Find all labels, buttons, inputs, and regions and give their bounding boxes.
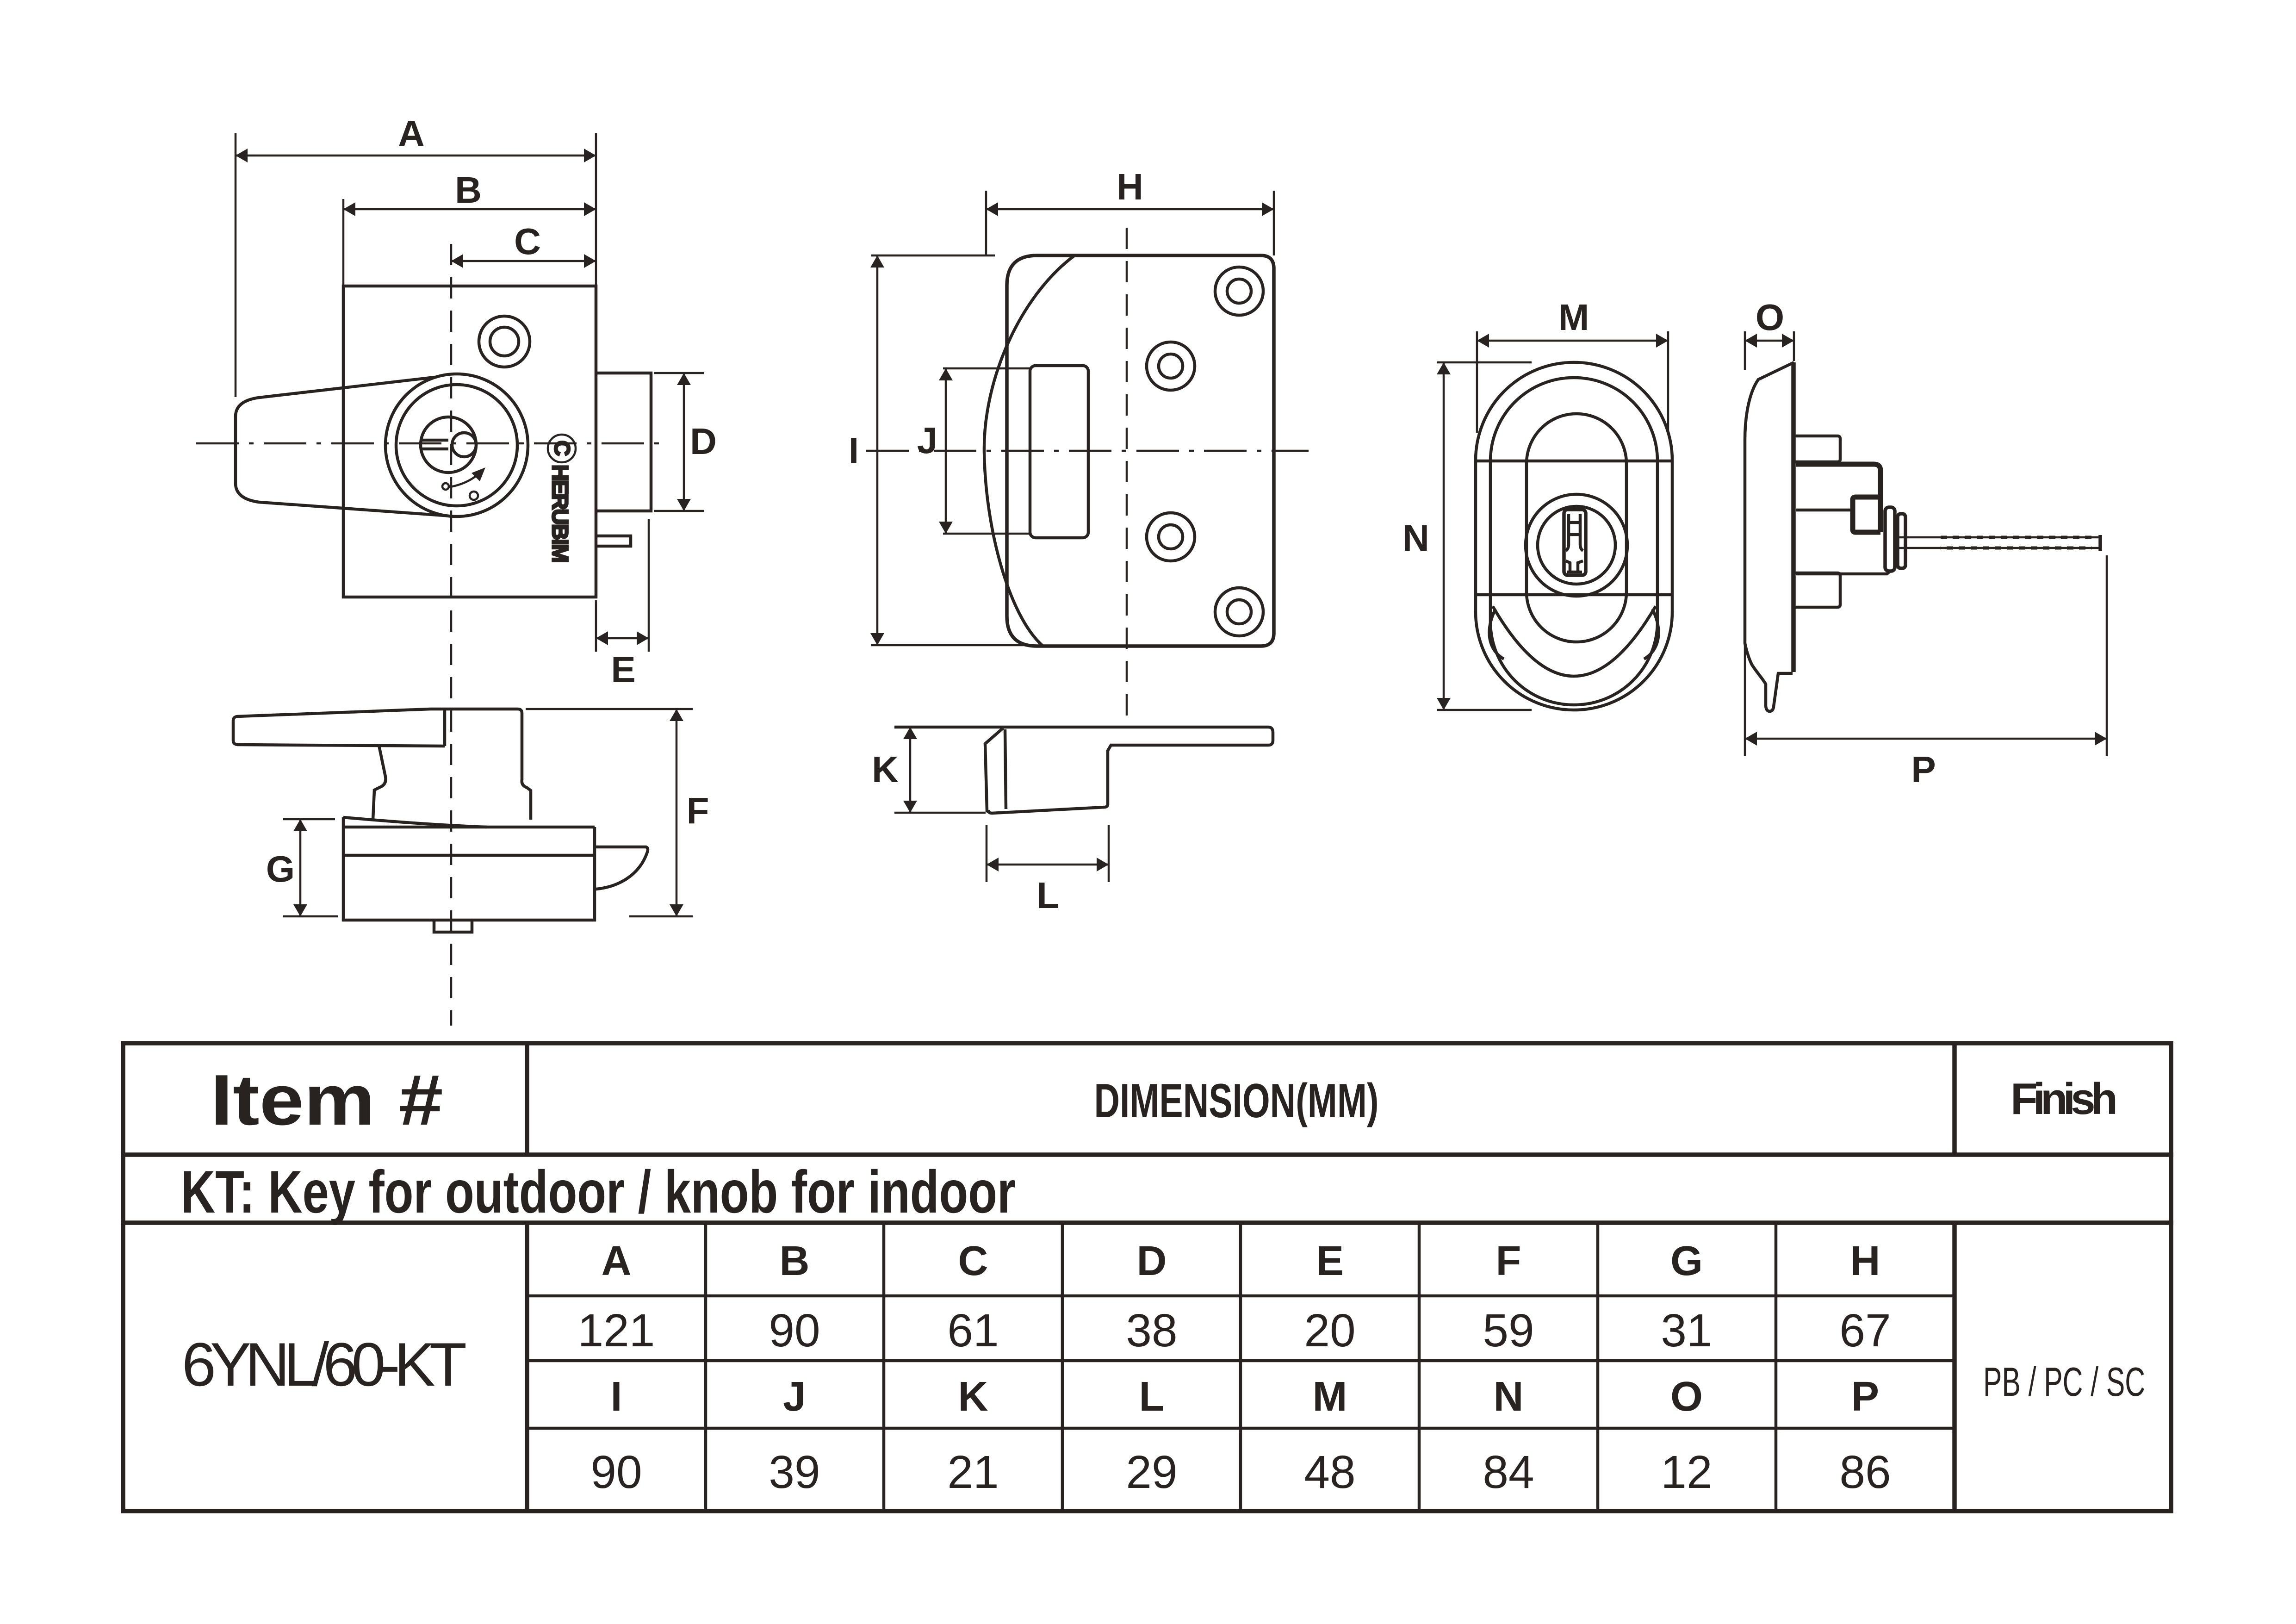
svg-text:A: A: [602, 1238, 632, 1284]
svg-text:C: C: [514, 221, 541, 262]
svg-text:90: 90: [769, 1305, 820, 1356]
svg-text:Finish: Finish: [2011, 1074, 2118, 1124]
svg-text:P: P: [1851, 1374, 1879, 1420]
svg-text:59: 59: [1483, 1305, 1534, 1356]
svg-text:K: K: [958, 1374, 988, 1420]
svg-text:84: 84: [1483, 1446, 1534, 1498]
svg-text:61: 61: [947, 1305, 999, 1356]
svg-text:20: 20: [1304, 1305, 1355, 1356]
svg-text:H: H: [1117, 166, 1143, 207]
svg-text:G: G: [1670, 1238, 1703, 1284]
svg-text:D: D: [1137, 1238, 1167, 1284]
svg-text:A: A: [398, 113, 425, 154]
svg-text:N: N: [1402, 517, 1429, 559]
svg-text:O: O: [1670, 1374, 1703, 1420]
svg-text:21: 21: [947, 1446, 999, 1498]
svg-text:DIMENSION(MM): DIMENSION(MM): [1094, 1074, 1379, 1128]
svg-text:B: B: [780, 1238, 810, 1284]
svg-text:29: 29: [1126, 1446, 1177, 1498]
svg-text:F: F: [1496, 1238, 1521, 1284]
svg-text:PB / PC / SC: PB / PC / SC: [1983, 1359, 2145, 1405]
svg-text:M: M: [1558, 297, 1589, 338]
svg-text:O: O: [1756, 297, 1784, 338]
svg-text:86: 86: [1839, 1446, 1891, 1498]
svg-text:J: J: [917, 420, 938, 461]
svg-text:39: 39: [769, 1446, 820, 1498]
svg-text:67: 67: [1839, 1305, 1891, 1356]
svg-text:Item #: Item #: [211, 1060, 442, 1140]
svg-text:I: I: [610, 1374, 622, 1420]
svg-text:E: E: [611, 649, 635, 690]
svg-text:6YNL/60-KT: 6YNL/60-KT: [182, 1331, 467, 1399]
svg-text:B: B: [455, 169, 482, 211]
svg-text:I: I: [849, 430, 859, 471]
svg-text:L: L: [1139, 1374, 1165, 1420]
svg-text:J: J: [783, 1374, 806, 1420]
svg-text:121: 121: [578, 1305, 655, 1356]
svg-text:N: N: [1494, 1374, 1524, 1420]
svg-text:90: 90: [590, 1446, 642, 1498]
svg-text:G: G: [266, 848, 295, 890]
svg-text:E: E: [1316, 1238, 1344, 1284]
svg-text:L: L: [1037, 875, 1060, 916]
svg-text:K: K: [872, 749, 899, 790]
svg-text:38: 38: [1126, 1305, 1177, 1356]
svg-text:F: F: [687, 790, 709, 831]
svg-text:P: P: [1911, 749, 1936, 790]
svg-text:12: 12: [1661, 1446, 1712, 1498]
svg-text:31: 31: [1661, 1305, 1712, 1356]
svg-text:M: M: [1313, 1374, 1347, 1420]
svg-text:D: D: [690, 421, 717, 462]
svg-text:C: C: [958, 1238, 988, 1284]
svg-text:48: 48: [1304, 1446, 1355, 1498]
svg-text:H: H: [1850, 1238, 1880, 1284]
svg-text:HERUBIM: HERUBIM: [547, 465, 572, 562]
svg-text:KT: Key for outdoor / knob for: KT: Key for outdoor / knob for indoor: [181, 1158, 1016, 1226]
svg-text:C: C: [550, 441, 574, 456]
